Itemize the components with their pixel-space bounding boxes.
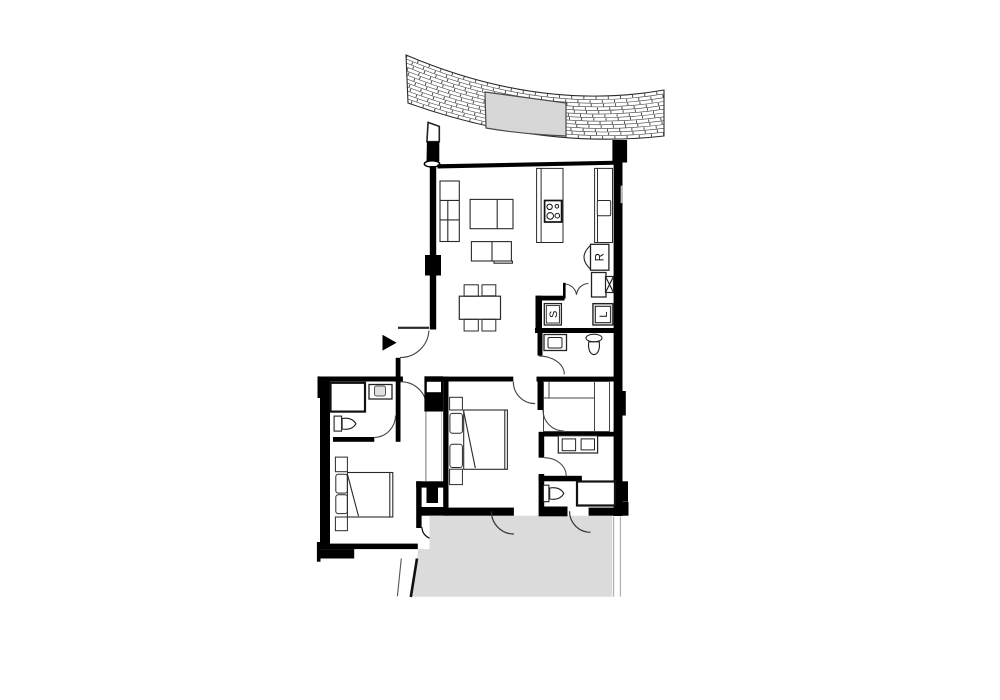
svg-text:L: L <box>598 311 610 317</box>
svg-text:R: R <box>595 253 607 261</box>
svg-text:S: S <box>548 311 560 318</box>
